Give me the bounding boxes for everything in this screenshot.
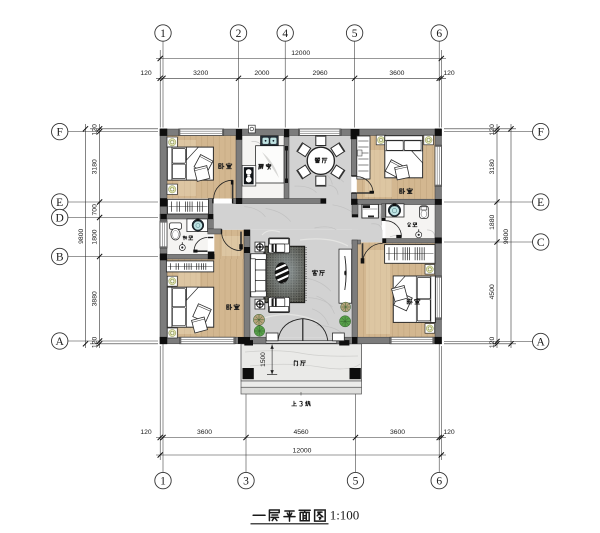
svg-text:5: 5 <box>353 476 359 488</box>
svg-text:12000: 12000 <box>291 50 310 57</box>
svg-text:120: 120 <box>443 429 455 436</box>
svg-text:1: 1 <box>160 476 166 488</box>
svg-text:4: 4 <box>282 28 288 40</box>
svg-text:700: 700 <box>92 204 99 216</box>
svg-text:3880: 3880 <box>92 291 99 306</box>
svg-text:1880: 1880 <box>489 215 496 230</box>
svg-text:E: E <box>56 197 63 209</box>
svg-text:12000: 12000 <box>293 447 312 454</box>
svg-text:120: 120 <box>92 337 99 349</box>
svg-text:5: 5 <box>352 28 358 40</box>
svg-text:C: C <box>537 237 545 249</box>
svg-text:120: 120 <box>140 70 152 77</box>
svg-text:2: 2 <box>236 28 242 40</box>
svg-text:3200: 3200 <box>193 70 208 77</box>
svg-text:4500: 4500 <box>489 284 496 299</box>
svg-text:3180: 3180 <box>489 159 496 174</box>
svg-text:9800: 9800 <box>503 229 510 244</box>
svg-text:120: 120 <box>92 124 99 136</box>
svg-text:6: 6 <box>436 28 442 40</box>
svg-text:F: F <box>537 127 543 139</box>
svg-text:3600: 3600 <box>197 429 212 436</box>
svg-text:120: 120 <box>140 429 152 436</box>
svg-text:3600: 3600 <box>389 70 404 77</box>
svg-text:1: 1 <box>160 28 166 40</box>
svg-text:A: A <box>537 337 546 349</box>
svg-text:4560: 4560 <box>293 429 308 436</box>
svg-text:1500: 1500 <box>260 352 267 367</box>
svg-text:3180: 3180 <box>92 159 99 174</box>
svg-text:E: E <box>537 197 544 209</box>
svg-text:120: 120 <box>489 337 496 349</box>
svg-text:120: 120 <box>489 124 496 136</box>
svg-text:9800: 9800 <box>78 229 85 244</box>
svg-text:2960: 2960 <box>312 70 327 77</box>
svg-text:3600: 3600 <box>390 429 405 436</box>
svg-text:2000: 2000 <box>254 70 269 77</box>
svg-text:3: 3 <box>243 476 249 488</box>
svg-text:B: B <box>56 252 64 264</box>
svg-text:D: D <box>56 213 64 225</box>
svg-text:1800: 1800 <box>92 229 99 244</box>
svg-text:6: 6 <box>436 476 442 488</box>
svg-text:1:100: 1:100 <box>330 508 360 523</box>
svg-text:120: 120 <box>443 70 455 77</box>
svg-text:A: A <box>56 336 65 348</box>
svg-text:F: F <box>56 127 62 139</box>
